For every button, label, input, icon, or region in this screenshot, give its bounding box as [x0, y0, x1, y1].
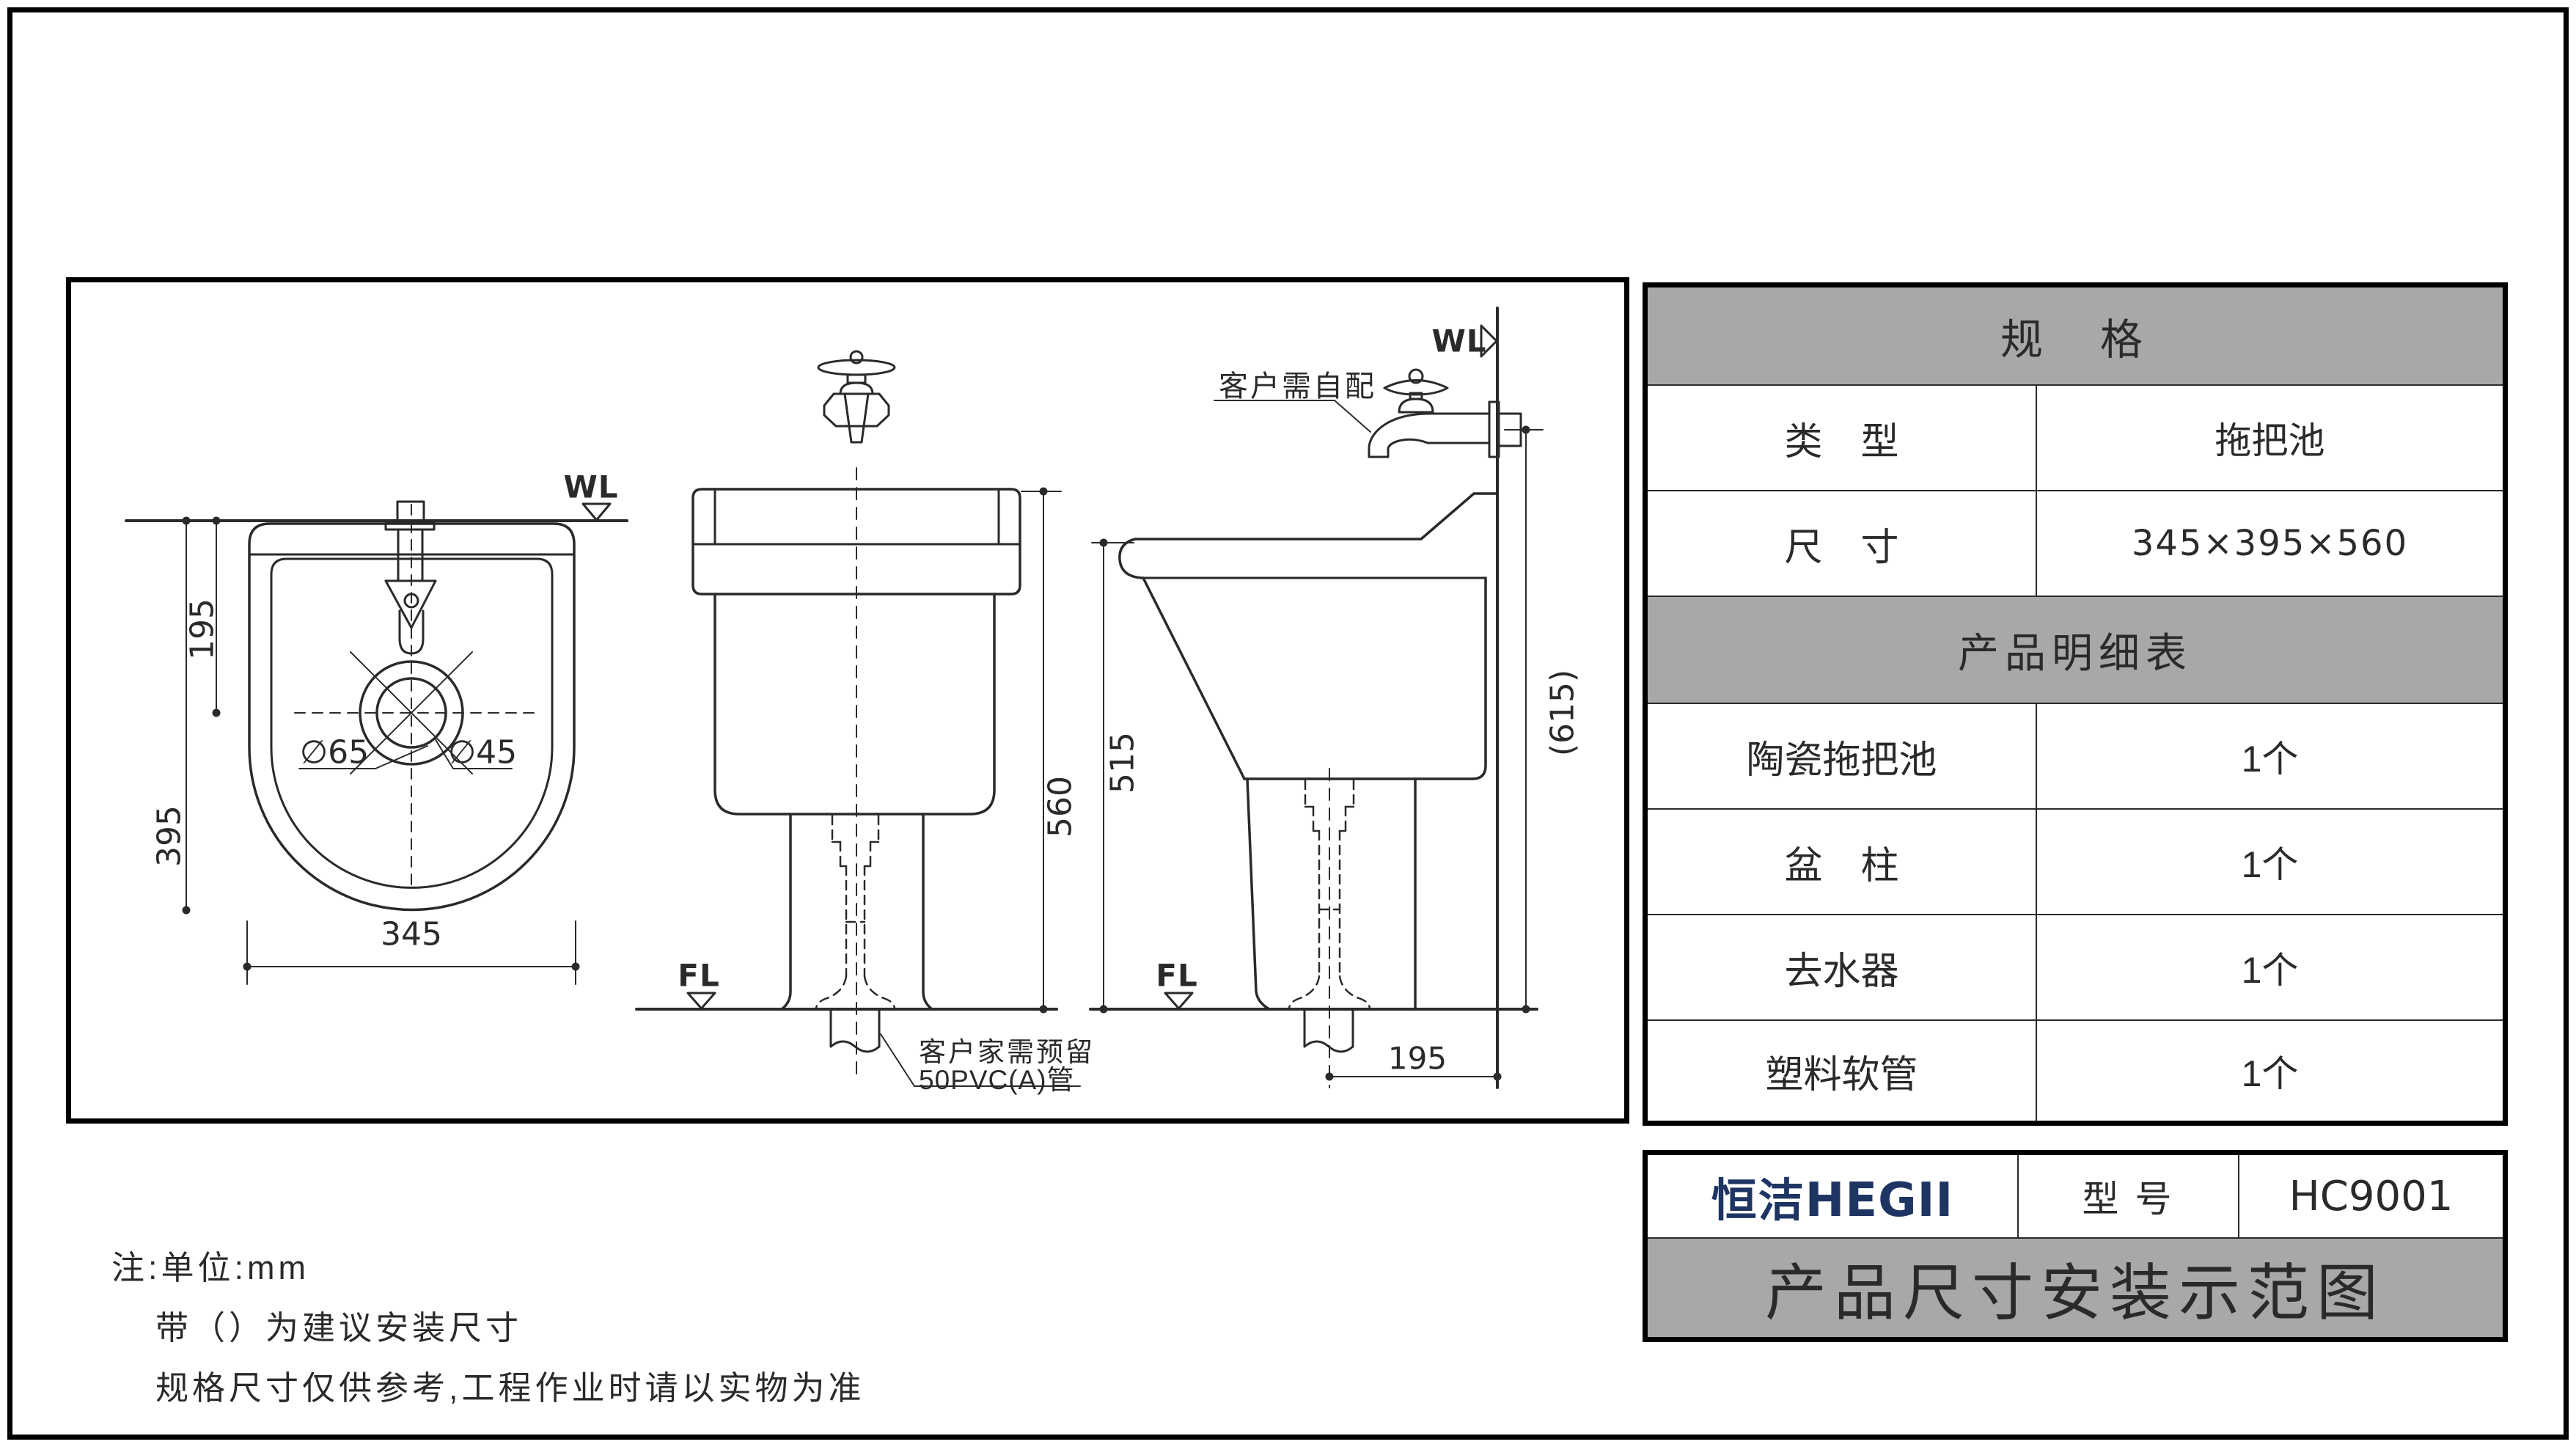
drain-outer-label: ∅65 [300, 734, 369, 772]
row-size-label: 尺 寸 [1648, 491, 2037, 596]
faucet-note: 客户需自配 [1219, 362, 1376, 405]
brand-logo: 恒洁HEGII [1648, 1155, 2019, 1237]
row-pedestal-label: 盆 柱 [1648, 810, 2037, 914]
note-line1: 注:单位:mm [111, 1241, 309, 1289]
row-drain-qty: 1个 [2037, 915, 2503, 1019]
model-value: HC9001 [2239, 1155, 2503, 1237]
wl-marker-plan: WL [563, 469, 618, 505]
row-drain-label: 去水器 [1648, 915, 2037, 1019]
title-block: 恒洁HEGII 型 号 HC9001 产品尺寸安装示范图 [1643, 1150, 2508, 1342]
wl-marker-side: WL [1431, 323, 1486, 359]
row-basin-label: 陶瓷拖把池 [1648, 704, 2037, 808]
dim-615: (615) [1544, 670, 1582, 756]
detail-header: 产品明细表 [1648, 596, 2503, 703]
row-basin-qty: 1个 [2037, 704, 2503, 808]
table-row: 去水器 1个 [1648, 914, 2503, 1019]
table-row: 类 型 拖把池 [1648, 384, 2503, 490]
spec-header: 规 格 [1648, 287, 2503, 384]
row-hose-label: 塑料软管 [1648, 1021, 2037, 1121]
dim-515: 515 [1104, 732, 1142, 794]
dim-560: 560 [1042, 776, 1079, 838]
note-line2: 带（）为建议安装尺寸 [155, 1301, 522, 1349]
fl-marker-front: FL [678, 958, 719, 994]
model-label: 型 号 [2019, 1155, 2239, 1237]
table-row: 陶瓷拖把池 1个 [1648, 703, 2503, 808]
dim-195-side: 195 [1388, 1041, 1447, 1077]
row-type-value: 拖把池 [2037, 386, 2503, 490]
brand-cn: 恒洁 [1711, 1176, 1805, 1226]
row-size-value: 345×395×560 [2037, 491, 2503, 596]
dim-195-plan: 195 [184, 598, 221, 660]
row-type-label: 类 型 [1648, 386, 2037, 490]
table-row: 盆 柱 1个 [1648, 808, 2503, 914]
drain-inner-label: ∅45 [448, 734, 517, 772]
drawing-box [66, 277, 1629, 1124]
fl-marker-side: FL [1156, 958, 1197, 994]
table-row: 尺 寸 345×395×560 [1648, 490, 2503, 596]
row-hose-qty: 1个 [2037, 1021, 2503, 1121]
page: WL WL FL FL 395 195 345 ∅65 ∅45 560 客户家需… [0, 0, 2576, 1447]
brand-en: HEGII [1805, 1173, 1953, 1228]
note-line3: 规格尺寸仅供参考,工程作业时请以实物为准 [155, 1361, 865, 1409]
dim-395: 395 [151, 805, 188, 867]
spec-table: 规 格 类 型 拖把池 尺 寸 345×395×560 产品明细表 陶瓷拖把池 … [1643, 282, 2508, 1126]
pipe-note-line2: 50PVC(A)管 [919, 1058, 1075, 1097]
table-row: 塑料软管 1个 [1648, 1019, 2503, 1121]
dim-345: 345 [381, 916, 442, 953]
diagram-title-banner: 产品尺寸安装示范图 [1648, 1237, 2503, 1337]
row-pedestal-qty: 1个 [2037, 810, 2503, 914]
